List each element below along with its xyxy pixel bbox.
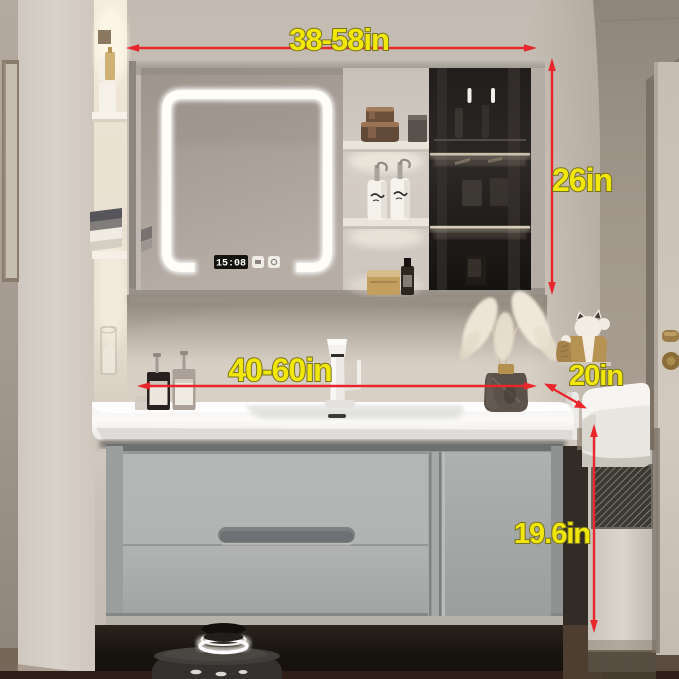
svg-text:20in: 20in (569, 360, 623, 392)
svg-text:15:08: 15:08 (216, 259, 246, 270)
svg-text:40-60in: 40-60in (228, 352, 331, 388)
svg-text:26in: 26in (552, 162, 612, 198)
svg-text:38-58in: 38-58in (289, 22, 389, 57)
svg-text:19.6in: 19.6in (514, 518, 590, 550)
